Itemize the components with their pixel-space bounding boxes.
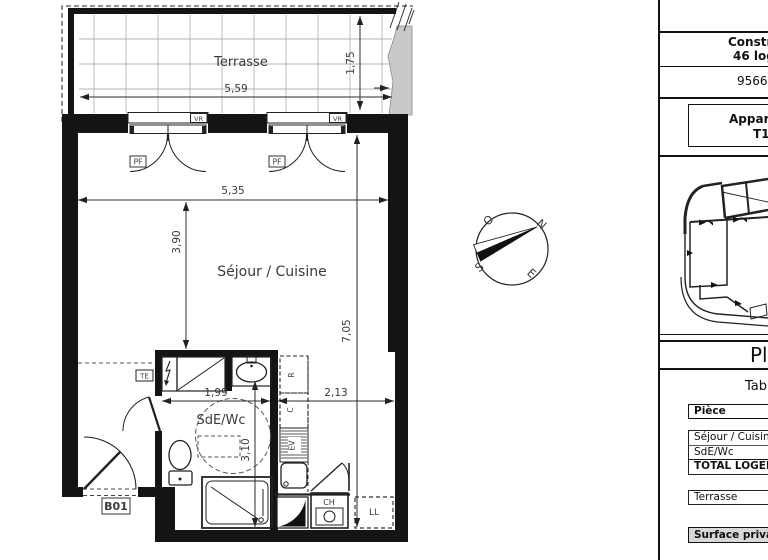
bathroom-door [123,397,160,431]
compass-e: E [524,266,539,281]
shower [202,477,272,528]
entrance-door: B01 [83,437,138,514]
entry-closets [78,357,225,391]
pf-tag: PF [273,158,282,167]
compass-rose: O N S E [472,212,550,285]
project-title-line1: Constru [728,35,768,49]
surface-table-title: Tab [745,379,767,394]
apartment-box: Appart T1 - [688,104,768,147]
washbasin [232,356,271,386]
room-label-sejour: Séjour / Cuisine [217,264,326,280]
c-tag: C [286,407,295,412]
table-row-total: TOTAL LOGEMENT [689,460,768,474]
dim-living-depth: 3,90 [171,230,183,253]
te-tag: TE [139,373,149,381]
pf-tag: PF [134,158,143,167]
project-title-line2: 46 log [733,49,768,63]
duct-symbol [277,497,308,528]
title-block-panel: Constru 46 log 95660 Appart T1 - [658,0,768,560]
ev-tag: EV [288,440,297,451]
apartment-line1: Appart [729,112,768,126]
ch-tag: CH [323,498,335,507]
dim-kitchen-width: 2,13 [324,387,347,399]
compass-n: N [534,216,550,232]
vr-tag: VR [194,115,203,123]
window-symbols [687,217,747,307]
clearance-zone [198,436,240,457]
dim-sde-depth: 3,10 [240,438,252,461]
dim-terrace-width: 5,59 [224,83,247,95]
key-plan-thumbnail [670,172,768,332]
neighbour-hatch [388,2,414,115]
room-label-terrasse: Terrasse [213,55,268,70]
apartment-line2: T1 - [753,127,768,141]
unit-number: B01 [104,500,128,513]
dim-terrace-depth: 1,75 [345,51,357,74]
table-row-sde: SdE/Wc [689,446,768,461]
ll-tag: LL [369,508,379,518]
table-row-sejour: Séjour / Cuisine [689,431,768,446]
room-label-sde: SdE/Wc [196,413,245,428]
panel-border [658,0,660,560]
project-address: 95660 [737,74,768,88]
vr-tag: VR [333,115,342,123]
surface-table-header: Pièce [688,404,768,419]
plan-title: Pla [750,343,768,367]
floorplan-drawing: VR PF VR PF [0,0,660,560]
table-row-terrasse: Terrasse [688,490,768,505]
dim-living-width: 5,35 [221,185,244,197]
toilet [169,441,192,486]
compass-o: O [480,212,496,228]
dim-total-depth: 7,05 [341,319,353,342]
floorplan-sheet: VR PF VR PF [0,0,768,560]
surface-table-rows: Séjour / Cuisine SdE/Wc TOTAL LOGEMENT [688,430,768,475]
table-row-surface-privative: Surface privative [688,527,768,543]
window-1: VR PF [128,113,208,172]
fridge-tag: R [287,372,296,377]
dim-sde-width: 1,99 [204,387,227,399]
window-2: VR PF [267,113,347,172]
